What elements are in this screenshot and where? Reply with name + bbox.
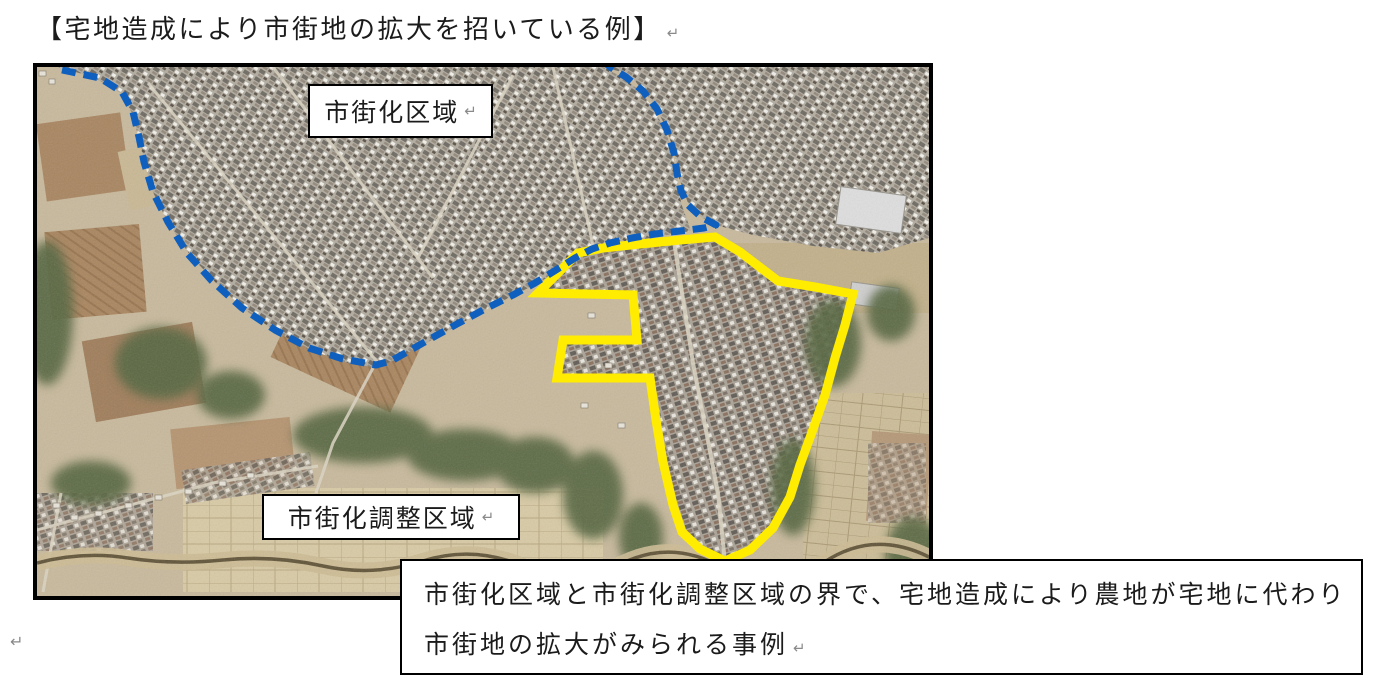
figure-caption-box: 市街化区域と市街化調整区域の界で、宅地造成により農地が宅地に代わり 市街地の拡大… bbox=[400, 559, 1363, 675]
label-urbanization-control-area: 市街化調整区域↵ bbox=[262, 494, 520, 540]
document-page: { "page": { "title": "【宅地造成により市街地の拡大を招いて… bbox=[0, 0, 1374, 684]
caption-line-1: 市街化区域と市街化調整区域の界で、宅地造成により農地が宅地に代わり bbox=[424, 570, 1361, 620]
return-mark-icon: ↵ bbox=[482, 508, 495, 526]
page-title-text: 【宅地造成により市街地の拡大を招いている例】 bbox=[36, 14, 662, 44]
return-mark-icon: ↵ bbox=[667, 25, 680, 42]
caption-line-2: 市街地の拡大がみられる事例↵ bbox=[424, 620, 1361, 674]
label-urbanization-area: 市街化区域↵ bbox=[308, 84, 493, 138]
caption-line-2-text: 市街地の拡大がみられる事例 bbox=[424, 631, 788, 659]
paragraph-return-mark: ↵ bbox=[10, 632, 23, 652]
return-mark-icon: ↵ bbox=[793, 640, 806, 657]
return-mark-icon: ↵ bbox=[464, 102, 477, 120]
label-urbanization-area-text: 市街化区域 bbox=[324, 93, 459, 129]
label-urbanization-control-area-text: 市街化調整区域 bbox=[288, 499, 477, 535]
page-title: 【宅地造成により市街地の拡大を招いている例】↵ bbox=[36, 9, 679, 46]
